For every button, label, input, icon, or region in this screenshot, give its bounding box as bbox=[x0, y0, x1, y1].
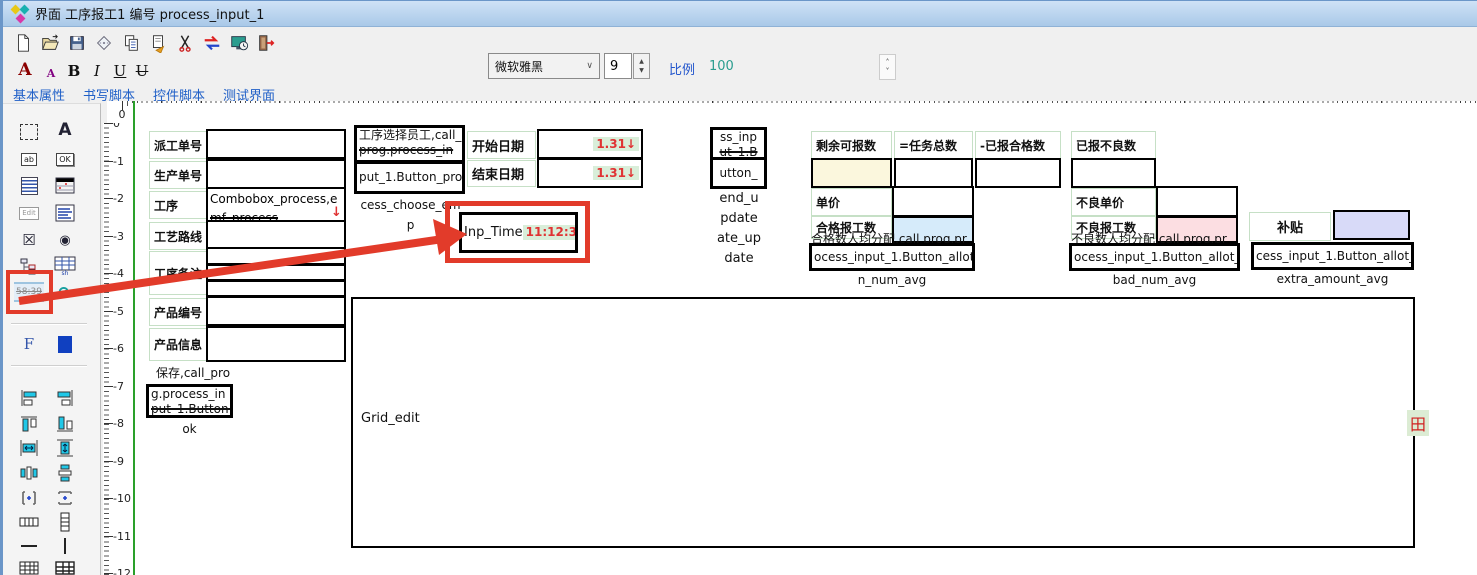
font-family-value: 微软雅黑 bbox=[495, 58, 543, 75]
inp-time-widget[interactable]: Inp_Time11:12:31 bbox=[459, 212, 578, 253]
field-input-remark-3[interactable] bbox=[206, 280, 346, 297]
grid-small-tool[interactable] bbox=[15, 556, 43, 575]
good-allot-button[interactable]: ocess_input_1.Button_allot_i bbox=[809, 243, 975, 271]
field-input-product-no[interactable] bbox=[206, 296, 346, 326]
inp-time-value: 11:12:31 bbox=[523, 225, 578, 240]
toolbox-panel: A ab OK Edit ☒ ◉ sh 58:39 ⟳ F bbox=[3, 103, 101, 575]
start-date-value: 1.31↓ bbox=[593, 137, 639, 151]
font-large-button[interactable]: A bbox=[15, 58, 35, 80]
list-box-tool[interactable] bbox=[51, 201, 79, 225]
tab-basic-properties[interactable]: 基本属性 bbox=[13, 85, 65, 104]
end-update-caption: end_u bbox=[699, 191, 779, 206]
vertical-line-tool[interactable] bbox=[51, 534, 79, 558]
grid-edit-label: Grid_edit bbox=[361, 411, 420, 426]
good-allot-button-text: ocess_input_1.Button_allot_i bbox=[814, 250, 975, 265]
app-icon bbox=[11, 5, 29, 23]
package-icon bbox=[94, 33, 114, 53]
package-button[interactable] bbox=[92, 31, 115, 54]
start-date-label[interactable]: 开始日期 bbox=[467, 131, 536, 159]
save-button[interactable] bbox=[65, 31, 88, 54]
horizontal-line-tool[interactable] bbox=[15, 534, 43, 558]
function-tool[interactable]: F bbox=[15, 332, 43, 356]
align-bottom-tool[interactable] bbox=[51, 412, 79, 436]
center-vertical-tool[interactable] bbox=[51, 461, 79, 485]
reported-good-input[interactable] bbox=[975, 158, 1061, 188]
remaining-qty-input[interactable] bbox=[811, 158, 892, 188]
font-size-input[interactable]: 9 bbox=[604, 53, 632, 79]
end-update-button[interactable]: ss_inp ut_1.B bbox=[710, 127, 767, 160]
reported-bad-input[interactable] bbox=[1071, 158, 1156, 188]
table-columns-tool[interactable] bbox=[15, 510, 43, 534]
bad-price-input[interactable] bbox=[1156, 186, 1238, 217]
space-horizontal-tool[interactable] bbox=[15, 486, 43, 510]
dropdown-arrow-icon[interactable]: ↓ bbox=[331, 205, 342, 220]
v-ruler-number: -3 bbox=[113, 230, 124, 243]
table-rows-icon bbox=[57, 512, 73, 532]
v-tick bbox=[104, 423, 113, 424]
table-rows-tool[interactable] bbox=[51, 510, 79, 534]
align-top-icon bbox=[19, 414, 39, 434]
bold-button[interactable]: B bbox=[65, 58, 83, 80]
field-input-dispatch-no[interactable] bbox=[206, 129, 346, 159]
function-icon: F bbox=[24, 335, 34, 353]
save-button-caption: ok bbox=[146, 422, 233, 436]
choose-employee-button-2[interactable]: put_1.Button_pro bbox=[354, 161, 465, 194]
window-title: 界面 工序报工1 编号 process_input_1 bbox=[35, 4, 264, 23]
origin-line bbox=[133, 101, 135, 575]
v-tick bbox=[104, 461, 113, 462]
fit-width-tool[interactable] bbox=[15, 436, 43, 460]
memo-tool[interactable] bbox=[15, 174, 43, 198]
text-input-icon: ab bbox=[21, 153, 37, 166]
v-ruler-number: -8 bbox=[113, 417, 124, 430]
font-small-button[interactable]: A bbox=[43, 58, 59, 80]
select-marquee-icon bbox=[20, 124, 38, 140]
color-block-tool[interactable] bbox=[51, 332, 79, 356]
grid-large-icon bbox=[55, 560, 75, 575]
qty-label[interactable]: -已报合格数 bbox=[975, 131, 1061, 159]
align-bottom-icon bbox=[55, 414, 75, 434]
table-columns-icon bbox=[19, 514, 39, 530]
edit-box-icon: Edit bbox=[19, 207, 39, 220]
choose-emp-caption: p bbox=[348, 218, 473, 232]
save-icon bbox=[67, 33, 87, 53]
ok-button-icon: OK bbox=[56, 153, 74, 166]
underline-button[interactable]: U bbox=[111, 58, 129, 80]
v-ruler-number: -6 bbox=[113, 342, 124, 355]
end-date-input[interactable]: 1.31↓ bbox=[537, 158, 643, 188]
v-ruler-number: -9 bbox=[113, 455, 124, 468]
radio-button-tool[interactable]: ◉ bbox=[51, 228, 79, 252]
field-label[interactable]: 生产单号 bbox=[149, 161, 207, 189]
choose-emp-line3: put_1.Button_pro bbox=[359, 170, 462, 185]
field-input-remark-1[interactable] bbox=[206, 247, 346, 265]
scale-up-icon: ˄ bbox=[886, 58, 890, 67]
bad-allot-button[interactable]: ocess_input_1.Button_allot_ bbox=[1069, 243, 1240, 271]
vertical-line-icon bbox=[64, 538, 66, 554]
grid-handle-icon[interactable]: 田 bbox=[1407, 410, 1429, 436]
v-ruler-number: -7 bbox=[113, 380, 124, 393]
time-display-icon: 58:39 bbox=[14, 282, 44, 302]
center-horizontal-tool[interactable] bbox=[15, 461, 43, 485]
chevron-down-icon: ∨ bbox=[586, 61, 593, 71]
radio-button-icon: ◉ bbox=[59, 233, 70, 248]
scale-stepper[interactable]: ˄ ˅ bbox=[879, 54, 896, 80]
font-size-stepper[interactable]: ▲ ▼ bbox=[633, 53, 650, 79]
save-button-line2: put_1.Button_ bbox=[151, 402, 228, 417]
center-vertical-icon bbox=[55, 463, 75, 483]
v-ruler-number: -4 bbox=[113, 267, 124, 280]
space-vertical-tool[interactable] bbox=[51, 486, 79, 510]
v-tick bbox=[104, 161, 113, 162]
exit-button[interactable] bbox=[254, 31, 277, 54]
preview-button[interactable] bbox=[227, 31, 250, 54]
italic-button[interactable]: I bbox=[89, 58, 105, 80]
data-table-tool[interactable] bbox=[51, 174, 79, 198]
save-button-text: 保存,call_pro bbox=[156, 364, 230, 381]
extra-allot-button[interactable]: cess_input_1.Button_allot_ bbox=[1251, 242, 1414, 270]
unit-price-label[interactable]: 单价 bbox=[811, 188, 892, 216]
v-tick bbox=[104, 498, 113, 499]
task-total-input[interactable] bbox=[894, 158, 973, 188]
subsidy-input[interactable] bbox=[1333, 210, 1410, 240]
v-ruler-number: -1 bbox=[113, 155, 124, 168]
edit-box-tool[interactable]: Edit bbox=[15, 201, 43, 225]
v-tick bbox=[104, 386, 113, 387]
designer-window: 界面 工序报工1 编号 process_input_1 A A B I U U … bbox=[0, 0, 1477, 575]
v-tick bbox=[104, 273, 113, 274]
strikethrough-button[interactable]: U bbox=[133, 58, 151, 80]
unit-price-input[interactable] bbox=[892, 186, 974, 217]
inp-time-label: Inp_Time bbox=[464, 225, 523, 240]
scale-value: 100 bbox=[709, 59, 734, 74]
refresh-globe-icon: ⟳ bbox=[58, 283, 71, 302]
copy-icon bbox=[121, 33, 141, 53]
v-ruler-number: 0 bbox=[113, 123, 120, 130]
spin-down-icon: ▼ bbox=[639, 66, 644, 75]
choose-emp-line2: prog.process_in bbox=[359, 143, 460, 158]
checkbox-icon: ☒ bbox=[22, 231, 35, 249]
scale-label: 比例 bbox=[669, 59, 695, 78]
copy-button[interactable] bbox=[119, 31, 142, 54]
field-input-production-no[interactable] bbox=[206, 159, 346, 189]
end-update-button-2[interactable]: utton_ bbox=[710, 157, 767, 189]
tree-view-tool[interactable] bbox=[15, 254, 43, 278]
subsidy-label[interactable]: 补贴 bbox=[1249, 212, 1331, 241]
align-top-tool[interactable] bbox=[15, 412, 43, 436]
fit-width-icon bbox=[19, 438, 39, 458]
field-label[interactable]: 工序备注 bbox=[149, 251, 207, 295]
tree-view-icon bbox=[19, 257, 39, 275]
bad-allot-button-text: ocess_input_1.Button_allot_ bbox=[1074, 250, 1240, 265]
export-icon bbox=[148, 33, 168, 53]
toolbox-divider bbox=[11, 365, 87, 367]
grid-large-tool[interactable] bbox=[51, 556, 79, 575]
save-ok-button[interactable]: g.process_in put_1.Button_ bbox=[146, 384, 233, 418]
start-date-input[interactable]: 1.31↓ bbox=[537, 129, 643, 159]
color-block-icon bbox=[58, 336, 72, 353]
field-label[interactable]: 产品信息 bbox=[149, 328, 207, 361]
extra-allot-button-text: cess_input_1.Button_allot_ bbox=[1256, 249, 1414, 264]
exit-door-icon bbox=[256, 33, 276, 53]
good-allot-caption: n_num_avg bbox=[809, 273, 975, 287]
v-tick bbox=[104, 573, 113, 574]
v-tick bbox=[104, 123, 113, 124]
new-file-icon bbox=[13, 33, 33, 53]
cut-icon bbox=[175, 33, 195, 53]
v-ruler-number: -12 bbox=[113, 567, 131, 575]
grid-edit-widget[interactable]: Grid_edit bbox=[351, 297, 1415, 548]
end-update-caption: pdate bbox=[699, 211, 779, 226]
field-label[interactable]: 工艺路线 bbox=[149, 222, 207, 250]
v-ruler-number: -5 bbox=[113, 305, 124, 318]
end-update-line1: ss_inp bbox=[715, 130, 762, 145]
v-tick bbox=[104, 311, 113, 312]
choose-emp-line1: 工序选择员工,call_ bbox=[359, 128, 460, 143]
open-folder-button[interactable] bbox=[38, 31, 61, 54]
grid-sheet-icon: sh bbox=[54, 256, 76, 276]
qty-label[interactable]: 已报不良数 bbox=[1071, 131, 1156, 159]
choose-employee-button[interactable]: 工序选择员工,call_ prog.process_in bbox=[354, 125, 465, 163]
grid-sheet-tool[interactable]: sh bbox=[51, 254, 79, 278]
space-horizontal-icon bbox=[19, 488, 39, 508]
field-input-route[interactable] bbox=[206, 220, 346, 249]
preview-monitor-icon bbox=[229, 33, 249, 53]
v-ruler-number: -10 bbox=[113, 492, 131, 505]
fit-height-icon bbox=[55, 438, 75, 458]
v-tick bbox=[104, 536, 113, 537]
list-box-icon bbox=[55, 204, 75, 222]
fit-height-tool[interactable] bbox=[51, 436, 79, 460]
memo-icon bbox=[21, 177, 38, 195]
center-horizontal-icon bbox=[19, 463, 39, 483]
refresh-globe-tool[interactable]: ⟳ bbox=[51, 280, 79, 304]
time-display-tool[interactable]: 58:39 bbox=[11, 280, 47, 304]
checkbox-tool[interactable]: ☒ bbox=[15, 228, 43, 252]
text-label-tool[interactable]: A bbox=[51, 118, 79, 142]
cut-button[interactable] bbox=[173, 31, 196, 54]
qty-label[interactable]: 剩余可报数 bbox=[811, 131, 892, 159]
new-file-button[interactable] bbox=[11, 31, 34, 54]
choose-emp-caption: cess_choose_em bbox=[348, 198, 473, 212]
field-label[interactable]: 工序 bbox=[149, 191, 207, 219]
select-marquee-tool[interactable] bbox=[15, 120, 43, 144]
svg-text:sh: sh bbox=[62, 270, 69, 276]
swap-arrows-button[interactable] bbox=[200, 31, 223, 54]
v-ruler-number: -2 bbox=[113, 192, 124, 205]
toolbox-divider bbox=[11, 323, 87, 325]
text-input-tool[interactable]: ab bbox=[15, 147, 43, 171]
v-tick bbox=[104, 198, 113, 199]
scale-down-icon: ˅ bbox=[886, 67, 890, 76]
field-input-remark-2[interactable] bbox=[206, 264, 346, 281]
text-label-icon: A bbox=[58, 120, 71, 140]
v-tick bbox=[104, 348, 113, 349]
font-family-select[interactable]: 微软雅黑 ∨ bbox=[488, 53, 600, 79]
space-vertical-icon bbox=[55, 488, 75, 508]
end-update-caption: ate_up bbox=[699, 231, 779, 246]
extra-allot-caption: extra_amount_avg bbox=[1251, 272, 1414, 286]
v-ruler: 0-1-2-3-4-5-6-7-8-9-10-11-12 bbox=[103, 123, 131, 575]
grid-small-icon bbox=[19, 560, 39, 575]
spin-up-icon: ▲ bbox=[639, 57, 644, 66]
field-label[interactable]: 产品编号 bbox=[149, 298, 207, 326]
open-folder-icon bbox=[40, 33, 60, 53]
end-update-caption: date bbox=[699, 251, 779, 266]
bad-allot-caption: bad_num_avg bbox=[1069, 273, 1240, 287]
end-date-value: 1.31↓ bbox=[593, 166, 639, 180]
diamond-teal-icon bbox=[20, 4, 30, 14]
align-right-icon bbox=[55, 388, 75, 408]
end-update-line3: utton_ bbox=[720, 166, 758, 181]
field-input-product-info[interactable] bbox=[206, 326, 346, 362]
export-button[interactable] bbox=[146, 31, 169, 54]
horizontal-line-icon bbox=[21, 545, 37, 547]
data-table-icon bbox=[55, 177, 75, 195]
v-ruler-number: -11 bbox=[113, 530, 131, 543]
end-date-label[interactable]: 结束日期 bbox=[467, 160, 536, 187]
align-right-tool[interactable] bbox=[51, 386, 79, 410]
swap-arrows-icon bbox=[202, 33, 222, 53]
align-left-tool[interactable] bbox=[15, 386, 43, 410]
ok-button-tool[interactable]: OK bbox=[51, 147, 79, 171]
v-tick bbox=[104, 236, 113, 237]
bad-price-label[interactable]: 不良单价 bbox=[1071, 188, 1156, 216]
combobox-text-line1: Combobox_process,e bbox=[210, 190, 342, 209]
qty-label[interactable]: =任务总数 bbox=[894, 131, 973, 159]
save-button-line1: g.process_in bbox=[151, 387, 228, 402]
title-bar: 界面 工序报工1 编号 process_input_1 bbox=[3, 1, 1477, 27]
align-left-icon bbox=[19, 388, 39, 408]
field-label[interactable]: 派工单号 bbox=[149, 131, 207, 159]
